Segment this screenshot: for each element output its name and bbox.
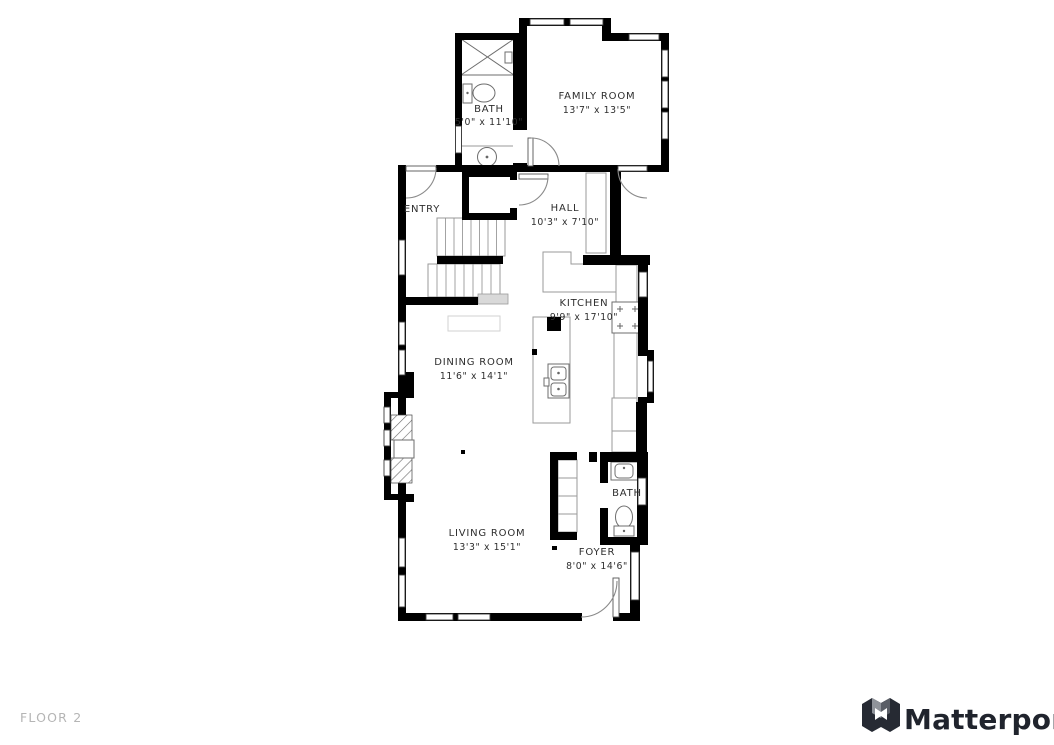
- front-door-arc: [581, 581, 617, 617]
- toilet-lower: [614, 506, 634, 536]
- hall-dims: 10'3" x 7'10": [531, 217, 599, 228]
- entry-door-arc: [406, 168, 436, 198]
- bath-upper-dims: 5'0" x 11'10": [455, 117, 523, 128]
- living-room-name: LIVING ROOM: [449, 528, 526, 539]
- kitchen-dims: 9'9" x 17'10": [550, 312, 618, 323]
- room-label-foyer: FOYER 8'0" x 14'6": [566, 547, 628, 572]
- stairs-below-outline: [448, 316, 500, 331]
- kitchen-cabinet-a: [612, 398, 637, 431]
- family-room-name: FAMILY ROOM: [559, 91, 636, 102]
- matterport-logo-text: Matterport: [904, 703, 1054, 736]
- kitchen-name: KITCHEN: [560, 298, 609, 309]
- bath-upper-name: BATH: [474, 104, 504, 115]
- hall-name: HALL: [551, 203, 580, 214]
- floorplan-page: BATH 5'0" x 11'10" FAMILY ROOM 13'7" x 1…: [0, 0, 1054, 745]
- shower: [461, 39, 514, 75]
- room-label-family-room: FAMILY ROOM 13'7" x 13'5": [559, 91, 636, 116]
- hall-chase: [586, 173, 606, 253]
- family-room-rear-door-arc: [618, 169, 647, 198]
- entry-name: ENTRY: [404, 204, 440, 215]
- room-label-dining-room: DINING ROOM 11'6" x 14'1": [434, 357, 514, 382]
- room-label-bath-lower: BATH: [612, 488, 642, 499]
- room-label-bath-upper: BATH 5'0" x 11'10": [455, 104, 523, 128]
- family-room-door-arc: [531, 138, 559, 166]
- toilet-upper: [463, 84, 495, 103]
- island-sink: [544, 364, 569, 398]
- stairs: [428, 218, 508, 331]
- family-room-dims: 13'7" x 13'5": [563, 105, 631, 116]
- bath-lower-name: BATH: [612, 488, 642, 499]
- matterport-logo: Matterport: [862, 698, 1054, 736]
- foyer-name: FOYER: [579, 547, 615, 558]
- dining-room-name: DINING ROOM: [434, 357, 514, 368]
- floor-label: FLOOR 2: [20, 710, 82, 725]
- floor-plan-canvas: BATH 5'0" x 11'10" FAMILY ROOM 13'7" x 1…: [0, 0, 1054, 745]
- foyer-dims: 8'0" x 14'6": [566, 561, 628, 572]
- bath-lower-fixtures: [611, 462, 638, 536]
- stairs-landing-step: [478, 294, 508, 304]
- room-label-living-room: LIVING ROOM 13'3" x 15'1": [449, 528, 526, 553]
- foyer-closet-shelves: [558, 460, 577, 532]
- sink-lower: [611, 462, 638, 480]
- room-label-entry: ENTRY: [404, 204, 440, 215]
- closet-door-arc: [519, 176, 548, 205]
- dining-room-dims: 11'6" x 14'1": [440, 371, 508, 382]
- kitchen-island: [533, 317, 570, 423]
- fireplace: [384, 372, 414, 502]
- kitchen-cabinet-b: [612, 431, 637, 452]
- kitchen-counter-right-b: [614, 333, 637, 398]
- living-room-dims: 13'3" x 15'1": [453, 542, 521, 553]
- kitchen-counter-right-a: [616, 265, 637, 302]
- matterport-logo-icon: [862, 698, 900, 732]
- room-label-kitchen: KITCHEN 9'9" x 17'10": [550, 298, 618, 323]
